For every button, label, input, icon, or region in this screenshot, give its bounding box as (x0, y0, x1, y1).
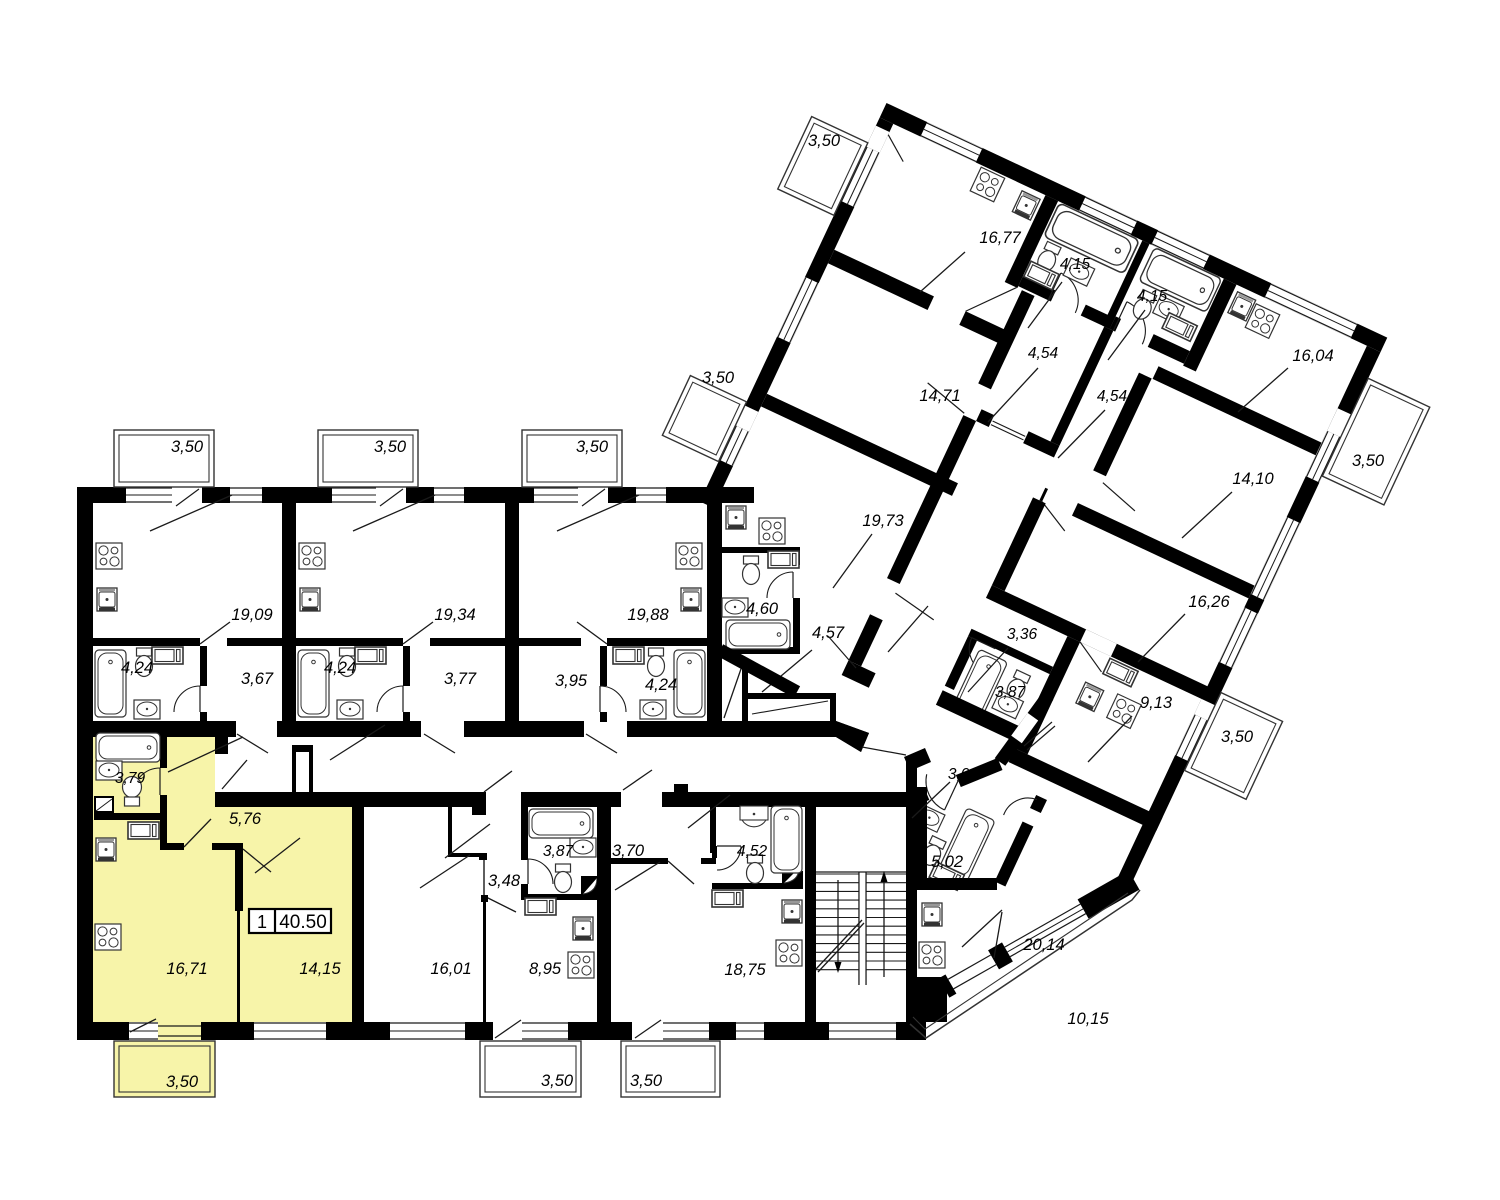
svg-text:4,15: 4,15 (1137, 288, 1168, 305)
svg-text:3,50: 3,50 (1221, 728, 1254, 746)
svg-text:19,88: 19,88 (627, 606, 669, 624)
svg-text:3,79: 3,79 (115, 770, 146, 787)
svg-text:4,24: 4,24 (121, 659, 153, 677)
svg-text:18,75: 18,75 (724, 961, 766, 979)
svg-text:19,34: 19,34 (434, 606, 475, 624)
svg-text:19,09: 19,09 (231, 606, 272, 624)
svg-text:3,50: 3,50 (630, 1072, 663, 1090)
svg-text:3,67: 3,67 (241, 670, 274, 688)
svg-text:4,54: 4,54 (1028, 345, 1059, 362)
svg-text:3,04: 3,04 (948, 766, 979, 783)
svg-text:4,24: 4,24 (324, 659, 356, 677)
svg-text:4,24: 4,24 (645, 676, 677, 694)
svg-text:40.50: 40.50 (279, 912, 327, 933)
svg-text:3,87: 3,87 (543, 843, 575, 860)
svg-text:3,48: 3,48 (488, 872, 521, 890)
svg-text:4,57: 4,57 (812, 624, 845, 642)
svg-text:3,50: 3,50 (171, 438, 204, 456)
svg-text:14,10: 14,10 (1232, 470, 1274, 488)
svg-text:8,95: 8,95 (529, 960, 562, 978)
svg-text:20,14: 20,14 (1022, 936, 1064, 954)
svg-text:3,36: 3,36 (1007, 626, 1038, 643)
svg-text:16,01: 16,01 (430, 960, 471, 978)
svg-text:4,15: 4,15 (1060, 256, 1091, 273)
svg-text:4,60: 4,60 (746, 600, 779, 618)
svg-text:3,50: 3,50 (702, 369, 735, 387)
svg-text:16,77: 16,77 (979, 229, 1021, 247)
svg-text:3,87: 3,87 (995, 684, 1027, 701)
svg-text:9,13: 9,13 (1140, 694, 1173, 712)
svg-text:4,52: 4,52 (737, 843, 768, 860)
svg-text:3,50: 3,50 (166, 1073, 199, 1091)
svg-text:14,15: 14,15 (299, 960, 341, 978)
svg-text:3,50: 3,50 (576, 438, 609, 456)
svg-text:3,70: 3,70 (612, 842, 645, 860)
svg-text:1: 1 (257, 912, 267, 932)
svg-text:19,73: 19,73 (862, 512, 904, 530)
svg-text:5,76: 5,76 (229, 810, 262, 828)
svg-text:16,71: 16,71 (166, 960, 207, 978)
svg-text:5,02: 5,02 (931, 853, 963, 871)
svg-text:3,95: 3,95 (555, 672, 588, 690)
svg-text:3,50: 3,50 (374, 438, 407, 456)
svg-text:3,77: 3,77 (444, 670, 477, 688)
svg-text:3,50: 3,50 (808, 132, 841, 150)
svg-text:16,04: 16,04 (1292, 347, 1333, 365)
svg-text:14,71: 14,71 (919, 387, 960, 405)
svg-text:4,54: 4,54 (1097, 388, 1128, 405)
svg-text:16,26: 16,26 (1188, 593, 1230, 611)
svg-text:10,15: 10,15 (1067, 1010, 1109, 1028)
svg-text:3,50: 3,50 (541, 1072, 574, 1090)
svg-text:3,50: 3,50 (1352, 452, 1385, 470)
